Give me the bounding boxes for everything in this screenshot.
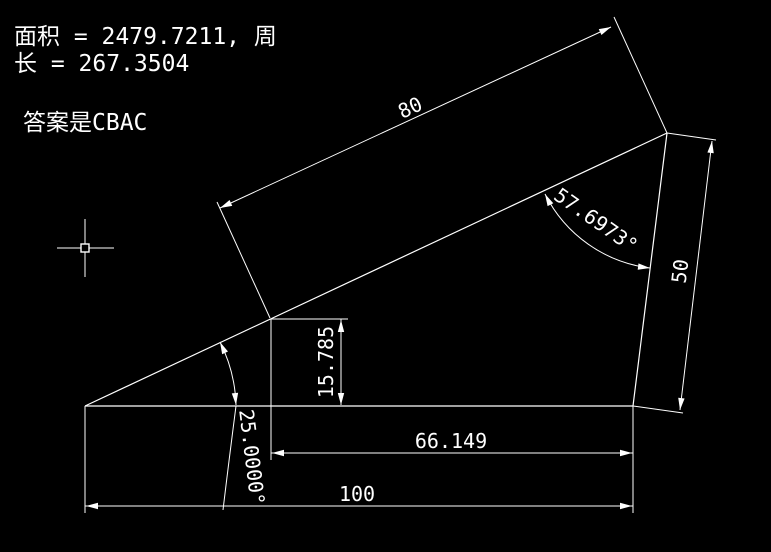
dimension-80-label[interactable]: 80 (394, 92, 426, 124)
extension-line[interactable] (217, 202, 270, 318)
command-output-text: 面积 = 2479.7211, 周 长 = 267.3504 答案是CBAC (14, 24, 277, 136)
dimension-100-label[interactable]: 100 (339, 482, 375, 506)
triangle-shape[interactable] (85, 133, 667, 406)
arrowhead (620, 450, 632, 456)
dimension-15-785-label[interactable]: 15.785 (314, 326, 338, 398)
arrowhead (638, 263, 651, 271)
edge-hypotenuse[interactable] (85, 133, 667, 406)
angle-leader-arc[interactable] (223, 406, 236, 510)
dimension-80[interactable] (217, 17, 667, 318)
arrowhead (338, 393, 344, 405)
area-text: 面积 = 2479.7211, 周 (14, 24, 277, 50)
extension-line[interactable] (633, 406, 683, 413)
cad-viewport[interactable]: 面积 = 2479.7211, 周 长 = 267.3504 答案是CBAC 8… (0, 0, 771, 552)
dimension-50-label[interactable]: 50 (667, 258, 694, 285)
angle-top-label[interactable]: 57.6973° (550, 183, 643, 258)
drawing-canvas[interactable]: 面积 = 2479.7211, 周 长 = 267.3504 答案是CBAC 8… (0, 0, 771, 552)
extension-line[interactable] (667, 133, 716, 140)
arrowhead (677, 398, 685, 411)
arrowhead (707, 141, 715, 154)
arrowhead (338, 320, 344, 332)
angle-bottom-left-label[interactable]: 25.0000° (234, 408, 270, 507)
arrowhead (599, 24, 613, 35)
arrowhead (86, 503, 98, 509)
arrowhead (272, 450, 284, 456)
crosshair-cursor (57, 219, 114, 277)
perimeter-text: 长 = 267.3504 (14, 51, 189, 77)
arrowhead (620, 503, 632, 509)
extension-line[interactable] (614, 17, 667, 133)
pickbox (81, 244, 89, 252)
arrowhead (232, 393, 239, 406)
answer-text: 答案是CBAC (23, 110, 147, 136)
dimension-66-149-label[interactable]: 66.149 (415, 429, 487, 453)
